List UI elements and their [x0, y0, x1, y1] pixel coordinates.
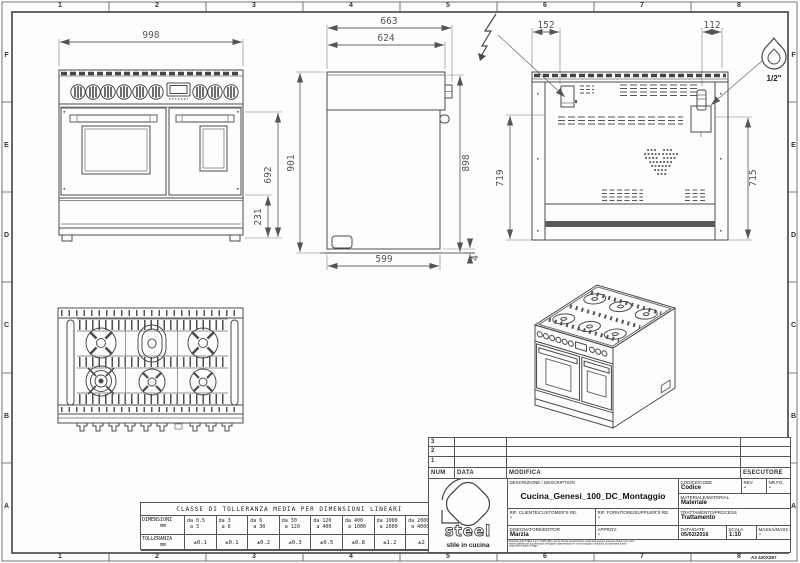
- zone-col-label: 1: [50, 552, 70, 562]
- dimension-label: 4: [470, 255, 481, 261]
- knob-tabs: [77, 423, 232, 431]
- tolerance-table-title: CLASSE DI TOLLERANZA MEDIA PER DIMENSION…: [141, 503, 438, 516]
- front-view: 998: [50, 12, 290, 262]
- tolerance-range: da 120a 400: [311, 516, 343, 535]
- oven-doors: [61, 108, 241, 195]
- isometric-view: .iso *{vector-effect:non-scaling-stroke;…: [505, 265, 720, 440]
- zone-col-label: 3: [244, 1, 264, 11]
- description-cell: DESCRIZIONE / DESCRIPTION Cucina_Genesi_…: [507, 478, 679, 509]
- tolerance-range: da 400a 1000: [343, 516, 375, 535]
- zone-col-label: 6: [535, 552, 555, 562]
- zone-row-label: C: [789, 321, 798, 331]
- rev-cell: REV.-: [741, 478, 767, 494]
- dimension-label: 599: [375, 254, 392, 265]
- tolerance-range: da 6a 30: [248, 516, 280, 535]
- logo-tagline: stile in cucina: [447, 542, 490, 549]
- zone-row-label: C: [2, 321, 11, 331]
- dimension-label: 663: [380, 16, 397, 27]
- iso-front-face: [535, 325, 613, 428]
- dimension-label: 901: [286, 154, 297, 171]
- zone-col-label: 3: [244, 552, 264, 562]
- sheet-cell: NR.FG.-: [766, 478, 791, 494]
- disclaimer-line: propri diritti a rigore di legge.: [509, 545, 791, 547]
- zone-col-label: 1: [50, 1, 70, 11]
- zone-col-label: 8: [729, 552, 749, 562]
- lightning-icon: [478, 14, 496, 61]
- zone-col-label: 4: [341, 1, 361, 11]
- tolerance-value: ±0.3: [280, 535, 312, 551]
- tolerance-tol-label: TOLLERANZAmm: [141, 535, 185, 551]
- zone-col-label: 2: [147, 1, 167, 11]
- panel-screws: [537, 93, 722, 232]
- zone-col-label: 4: [341, 552, 361, 562]
- knob-row: [71, 83, 238, 99]
- wok-burner: [86, 366, 116, 396]
- tolerance-range: da 3a 6: [217, 516, 249, 535]
- tolerance-dim-label: DIMENSIONImm: [141, 516, 185, 535]
- oval-burner: [138, 325, 166, 362]
- tolerance-range: da 30a 120: [280, 516, 312, 535]
- drawing-title: Cucina_Genesi_100_DC_Montaggio: [508, 491, 678, 501]
- customer-ref-cell: RIF. CLIENTE/CUSTOMER'S RE.-: [507, 508, 596, 526]
- tolerance-value: ±1.2: [375, 535, 407, 551]
- zone-row-label: A: [2, 502, 11, 512]
- zone-col-label: 7: [632, 552, 652, 562]
- dimension-label: 998: [142, 30, 159, 41]
- dimension-label: 692: [263, 166, 274, 183]
- dimension-label: 112: [703, 20, 720, 31]
- mass-cell: MASSA/MASS Kg-: [756, 525, 791, 540]
- electrical-box: [561, 86, 577, 107]
- display-panel: [167, 83, 190, 99]
- drawing-sheet: 1 2 3 4 5 6 7 8 1 2 3 4 5 6 7 8 F E D C …: [0, 0, 800, 563]
- zone-row-label: B: [2, 412, 11, 422]
- vent-slots: [558, 85, 707, 201]
- tolerance-range: da 1000a 2000: [375, 516, 407, 535]
- logo-cell: steel stile in cucina: [428, 478, 508, 553]
- tolerance-value: ±0.5: [311, 535, 343, 551]
- process-cell: TRATTAMENTO/PROCESSTrattamento: [678, 508, 791, 526]
- zone-row-label: D: [2, 231, 11, 241]
- approv-cell: APPROV.-: [595, 525, 679, 540]
- editor-cell: DISEGNATORE/EDITORMarzia: [507, 525, 596, 540]
- burner: [190, 369, 216, 395]
- perforated-pattern: [645, 150, 678, 174]
- gas-inlet: [691, 90, 711, 137]
- base-band: [59, 198, 243, 241]
- dimension-label: 715: [748, 169, 759, 186]
- dimension-label: 152: [537, 20, 554, 31]
- code-cell: CODICE/CODECodice: [678, 478, 742, 494]
- disclaimer-cell: Proprieta' dello STEEL S.p.A. CARPI (MO)…: [507, 539, 791, 553]
- dimension-label: 231: [253, 208, 264, 225]
- description-label: DESCRIZIONE / DESCRIPTION: [508, 479, 678, 485]
- burner: [188, 328, 218, 358]
- rear-view: 152 112: [470, 8, 795, 253]
- logo-text: steel: [445, 522, 492, 540]
- burner: [86, 328, 116, 358]
- zone-row-label: B: [789, 412, 798, 422]
- side-view: 663 624 901 898 599 4: [285, 12, 485, 272]
- flame-icon: 1/2": [762, 38, 786, 83]
- zone-row-label: E: [2, 141, 11, 151]
- tolerance-table: CLASSE DI TOLLERANZA MEDIA PER DIMENSION…: [140, 502, 437, 550]
- supplier-ref-cell: RIF. FORNITORE/SUPPLIER'S RE.-: [595, 508, 679, 526]
- zone-col-label: 5: [438, 1, 458, 11]
- tolerance-value: ±0.1: [217, 535, 249, 551]
- tolerance-value: ±0.1: [185, 535, 217, 551]
- dimension-label: 719: [495, 169, 506, 186]
- dimension-label: 624: [377, 33, 394, 44]
- title-block: 3 2 1 NUM DATA MODIFICA ESECUTORE steel …: [428, 437, 791, 553]
- tolerance-value: ±0.2: [248, 535, 280, 551]
- sheet-format-label: A3 420X297: [751, 553, 795, 562]
- gas-size-label: 1/2": [767, 74, 782, 83]
- zone-row-label: F: [2, 51, 11, 61]
- zone-col-label: 5: [438, 552, 458, 562]
- scale-cell: SCALA1:10: [726, 525, 757, 540]
- steel-logo: steel stile in cucina: [429, 479, 507, 552]
- tolerance-value: ±0.8: [343, 535, 375, 551]
- top-view: [55, 295, 260, 445]
- tolerance-range: da 0.5a 3: [185, 516, 217, 535]
- zone-col-label: 2: [147, 552, 167, 562]
- burner: [139, 369, 165, 395]
- date-cell: DATA/DATE05/02/2016: [678, 525, 727, 540]
